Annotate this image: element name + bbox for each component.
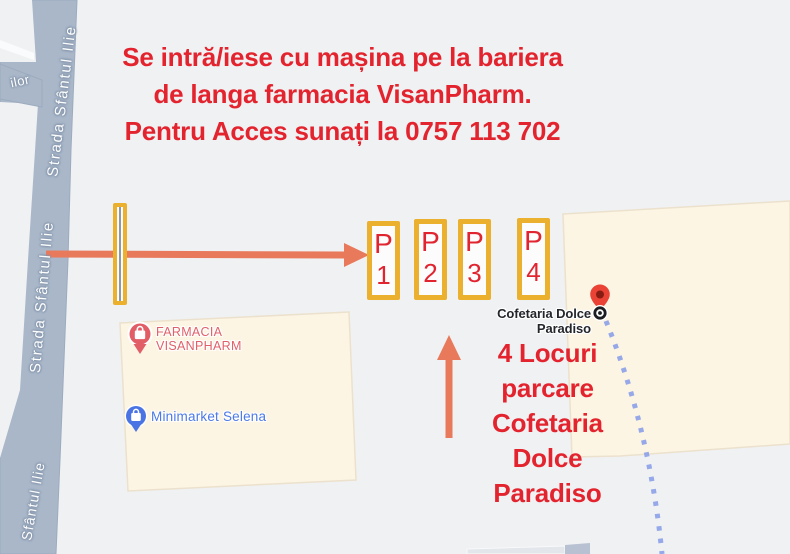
parking-note-line-3: Cofetaria — [460, 406, 635, 441]
parking-spot-letter: P — [463, 225, 486, 258]
instructions-line-3: Pentru Acces sunați la 0757 113 702 — [75, 113, 610, 150]
road-bottom-stub — [565, 543, 590, 554]
arrow-right-icon — [46, 243, 369, 267]
instructions-line-2: de langa farmacia VisanPharm. — [75, 76, 610, 113]
parking-spot-2: P 2 — [414, 219, 447, 300]
poi-label-minimarket-selena[interactable]: Minimarket Selena — [151, 409, 266, 424]
map-canvas: Strada Sfântul Ilie Strada Sfântul Ilie … — [0, 0, 790, 554]
pharmacy-label-line-2: VISANPHARM — [156, 339, 242, 353]
parking-note-line-1: 4 Locuri — [460, 336, 635, 371]
parking-spot-number: 2 — [419, 258, 442, 288]
parking-spot-number: 1 — [372, 260, 395, 290]
parking-spot-4: P 4 — [517, 218, 550, 300]
parking-spot-number: 3 — [463, 258, 486, 288]
target-bullseye-icon — [592, 305, 608, 321]
parking-spot-1: P 1 — [367, 221, 400, 300]
parking-note-line-5: Paradiso — [460, 476, 635, 511]
parking-note-line-2: parcare — [460, 371, 635, 406]
barrier-fence-line — [119, 207, 121, 301]
arrow-up-icon — [437, 335, 461, 438]
parking-note-line-4: Dolce — [460, 441, 635, 476]
parking-spot-letter: P — [419, 225, 442, 258]
poi-label-cofetaria-dolce-paradiso[interactable]: Cofetaria Dolce Paradiso — [441, 306, 591, 336]
parking-spot-number: 4 — [522, 257, 545, 287]
building-bottom-slab — [467, 546, 565, 554]
instructions-line-1: Se intră/iese cu mașina pe la bariera — [75, 39, 610, 76]
pharmacy-label-line-1: FARMACIA — [156, 325, 242, 339]
parking-note: 4 Locuri parcare Cofetaria Dolce Paradis… — [460, 336, 635, 511]
parking-spot-letter: P — [522, 224, 545, 257]
entry-instructions-note: Se intră/iese cu mașina pe la bariera de… — [75, 39, 610, 150]
parking-spot-letter: P — [372, 227, 395, 260]
poi-label-farmacia-visanpharm[interactable]: FARMACIA VISANPHARM — [156, 325, 242, 353]
parking-spot-3: P 3 — [458, 219, 491, 300]
barrier-marker — [113, 203, 127, 305]
